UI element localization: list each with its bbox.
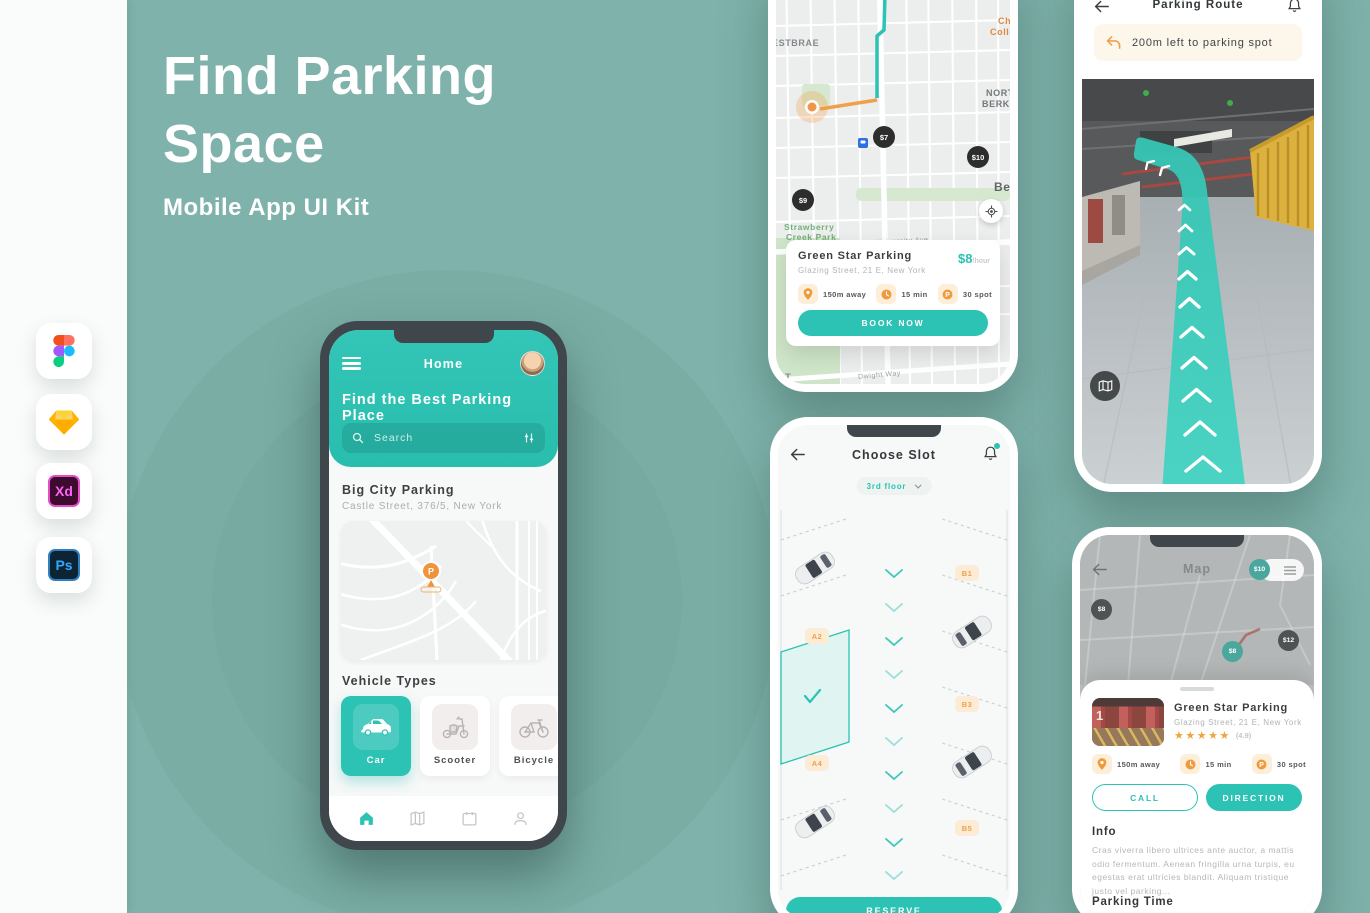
tool-strip: Xd Ps — [0, 0, 127, 913]
column-number: 1 — [1096, 708, 1103, 723]
phone-home: Home Find the Best Parking Place Big Cit… — [320, 321, 567, 850]
choose-slot-screen: Choose Slot 3rd floor — [778, 425, 1010, 913]
drag-handle[interactable] — [1180, 687, 1214, 691]
vehicle-section-title: Vehicle Types — [342, 674, 437, 688]
map-icon — [1098, 380, 1113, 393]
parking-icon: P — [1256, 759, 1267, 770]
price-pin[interactable]: $8 — [1222, 641, 1243, 662]
parking-name: Green Star Parking — [1174, 702, 1288, 714]
phone-route: Parking Route 200m left to parking spot — [1074, 0, 1322, 492]
menu-icon — [1284, 566, 1296, 575]
ps-label: Ps — [55, 557, 72, 573]
nav-calendar-icon[interactable] — [461, 810, 478, 827]
stat-time: 15 min — [1180, 754, 1231, 774]
svg-text:P: P — [1260, 761, 1265, 768]
stat-distance: 150m away — [798, 284, 866, 304]
phone-choose-slot: Choose Slot 3rd floor — [770, 417, 1018, 913]
location-pin-icon — [1097, 758, 1107, 770]
floor-label: 3rd floor — [867, 482, 907, 491]
banner-text: 200m left to parking spot — [1132, 37, 1272, 49]
vehicle-card-scooter[interactable]: Scooter — [420, 696, 490, 776]
home-heading: Find the Best Parking Place — [342, 392, 558, 424]
photoshop-icon: Ps — [36, 537, 92, 593]
avatar[interactable] — [520, 351, 545, 376]
stat-distance: 150m away — [1092, 754, 1160, 774]
detail-sheet: 1 Green Star Parking Glazing Street, 21 … — [1080, 680, 1314, 913]
parking-icon: P — [942, 289, 953, 300]
figma-icon — [36, 323, 92, 379]
parking-price-unit: /hour — [973, 258, 991, 265]
parking-photo-thumb: 1 — [1092, 698, 1164, 746]
adobe-xd-icon: Xd — [36, 463, 92, 519]
place-name: Big City Parking — [342, 483, 455, 497]
selected-slot[interactable] — [781, 630, 849, 764]
parking-time-title: Parking Time — [1092, 896, 1174, 908]
direction-button[interactable]: DIRECTION — [1206, 784, 1302, 811]
label-north-berkeley-2: BERKEL — [982, 99, 1010, 109]
page-subtitle: Mobile App UI Kit — [163, 194, 369, 222]
label-collection-2: Collecti — [990, 27, 1010, 37]
distance-banner: 200m left to parking spot — [1094, 24, 1302, 61]
clock-icon — [881, 289, 892, 300]
bell-badge — [994, 443, 1000, 449]
price-pin[interactable]: $9 — [792, 189, 814, 211]
home-map: P — [341, 521, 546, 660]
clock-icon — [1185, 759, 1196, 770]
label-westbrae: ESTBRAE — [776, 38, 819, 48]
price-pin[interactable]: $10 — [967, 146, 989, 168]
notification-bell[interactable] — [983, 445, 998, 466]
route-screen: Parking Route 200m left to parking spot — [1082, 0, 1314, 484]
home-screen: Home Find the Best Parking Place Big Cit… — [329, 330, 558, 841]
rating-stars: ★★★★★ — [1174, 729, 1231, 742]
sketch-icon — [36, 394, 92, 450]
stat-spots: P 30 spot — [1252, 754, 1306, 774]
info-title: Info — [1092, 826, 1116, 838]
filter-icon[interactable] — [523, 432, 535, 444]
phone-notch — [394, 330, 494, 343]
label-berkeley: Ber — [994, 180, 1010, 194]
floor-selector[interactable]: 3rd floor — [857, 477, 932, 495]
parking-price: $8 — [958, 251, 972, 266]
route-origin — [796, 91, 828, 123]
label-est: EST — [776, 372, 791, 382]
home-map-card[interactable]: P — [341, 521, 546, 660]
slot-label-b1[interactable]: B1 — [955, 565, 979, 581]
book-now-button[interactable]: BOOK NOW — [798, 310, 988, 336]
lane-chevrons — [886, 570, 902, 879]
location-pin-icon — [803, 288, 813, 300]
search-bar — [342, 423, 545, 453]
label-north-berkeley-1: NORT — [986, 88, 1010, 98]
price-pin[interactable]: $7 — [873, 126, 895, 148]
parking-address: Glazing Street, 21 E, New York — [798, 266, 926, 275]
ar-view — [1082, 79, 1314, 484]
map-toggle-button[interactable] — [1090, 371, 1120, 401]
search-input[interactable] — [372, 431, 523, 445]
booking-card: Green Star Parking $8/hour Glazing Stree… — [786, 240, 1000, 346]
slot-label-b5[interactable]: B5 — [955, 820, 979, 836]
page-title: Find Parking Space — [163, 42, 496, 178]
label-park-1: Strawberry — [784, 222, 834, 232]
reserve-button[interactable]: RESERVE — [786, 897, 1002, 913]
stat-time: 15 min — [876, 284, 927, 304]
route-title: Parking Route — [1082, 0, 1314, 11]
phone-map: ESTBRAE Che Collecti NORT BERKEL Ber Str… — [768, 0, 1018, 392]
bell-icon[interactable] — [1287, 0, 1302, 13]
detail-map — [1080, 535, 1314, 685]
crosshair-icon — [985, 205, 998, 218]
stat-spots: P 30 spot — [938, 284, 992, 304]
call-button[interactable]: CALL — [1092, 784, 1198, 811]
label-collection-1: Che — [998, 16, 1010, 26]
parked-car — [792, 803, 837, 841]
nav-profile-icon[interactable] — [512, 810, 529, 827]
phone-notch — [847, 425, 941, 437]
slot-label-a4[interactable]: A4 — [805, 755, 829, 771]
scooter-icon — [440, 714, 470, 740]
home-header: Home Find the Best Parking Place — [329, 330, 558, 467]
nav-home-icon[interactable] — [358, 810, 375, 827]
price-pin[interactable]: $10 — [1249, 559, 1270, 580]
detail-screen: Map $10 $8 $8 $12 1 Green Star Parking G… — [1080, 535, 1314, 913]
slot-label-b3[interactable]: B3 — [955, 696, 979, 712]
rating-value: (4.9) — [1236, 731, 1251, 740]
parking-pin-icon: P — [421, 562, 441, 592]
svg-text:P: P — [428, 567, 434, 577]
parked-car — [949, 743, 994, 781]
price-pin[interactable]: $8 — [1091, 599, 1112, 620]
vehicle-card-car[interactable]: Car — [341, 696, 411, 776]
phone-notch — [1150, 535, 1244, 547]
bottom-nav — [329, 796, 558, 841]
xd-label: Xd — [55, 483, 73, 499]
ui-kit-cover: Find Parking Space Mobile App UI Kit — [0, 0, 1370, 913]
parked-car — [792, 549, 837, 587]
vehicle-label-car: Car — [341, 755, 411, 766]
chevron-down-icon — [914, 484, 921, 489]
phone-detail: Map $10 $8 $8 $12 1 Green Star Parking G… — [1072, 527, 1322, 913]
parking-address: Glazing Street, 21 E, New York — [1174, 718, 1302, 727]
locate-button[interactable] — [979, 199, 1003, 223]
title-line1: Find Parking — [163, 42, 496, 110]
bicycle-icon — [518, 715, 550, 739]
slot-label-a2[interactable]: A2 — [805, 628, 829, 644]
title-line2: Space — [163, 110, 496, 178]
map-screen: ESTBRAE Che Collecti NORT BERKEL Ber Str… — [776, 0, 1010, 384]
svg-text:P: P — [946, 291, 951, 298]
price-pin[interactable]: $12 — [1278, 630, 1299, 651]
place-address: Castle Street, 376/5, New York — [342, 501, 502, 512]
vehicle-label-bicycle: Bicycle — [499, 755, 558, 766]
choose-slot-title: Choose Slot — [778, 448, 1010, 462]
parking-name: Green Star Parking — [798, 250, 912, 262]
vehicle-card-bicycle[interactable]: Bicycle — [499, 696, 558, 776]
car-icon — [359, 717, 393, 737]
info-text: Cras viverra libero ultrices ante auctor… — [1092, 844, 1304, 898]
nav-map-icon[interactable] — [409, 810, 426, 827]
search-icon — [352, 432, 364, 444]
turn-left-icon — [1106, 35, 1122, 50]
vehicle-label-scooter: Scooter — [420, 755, 490, 766]
